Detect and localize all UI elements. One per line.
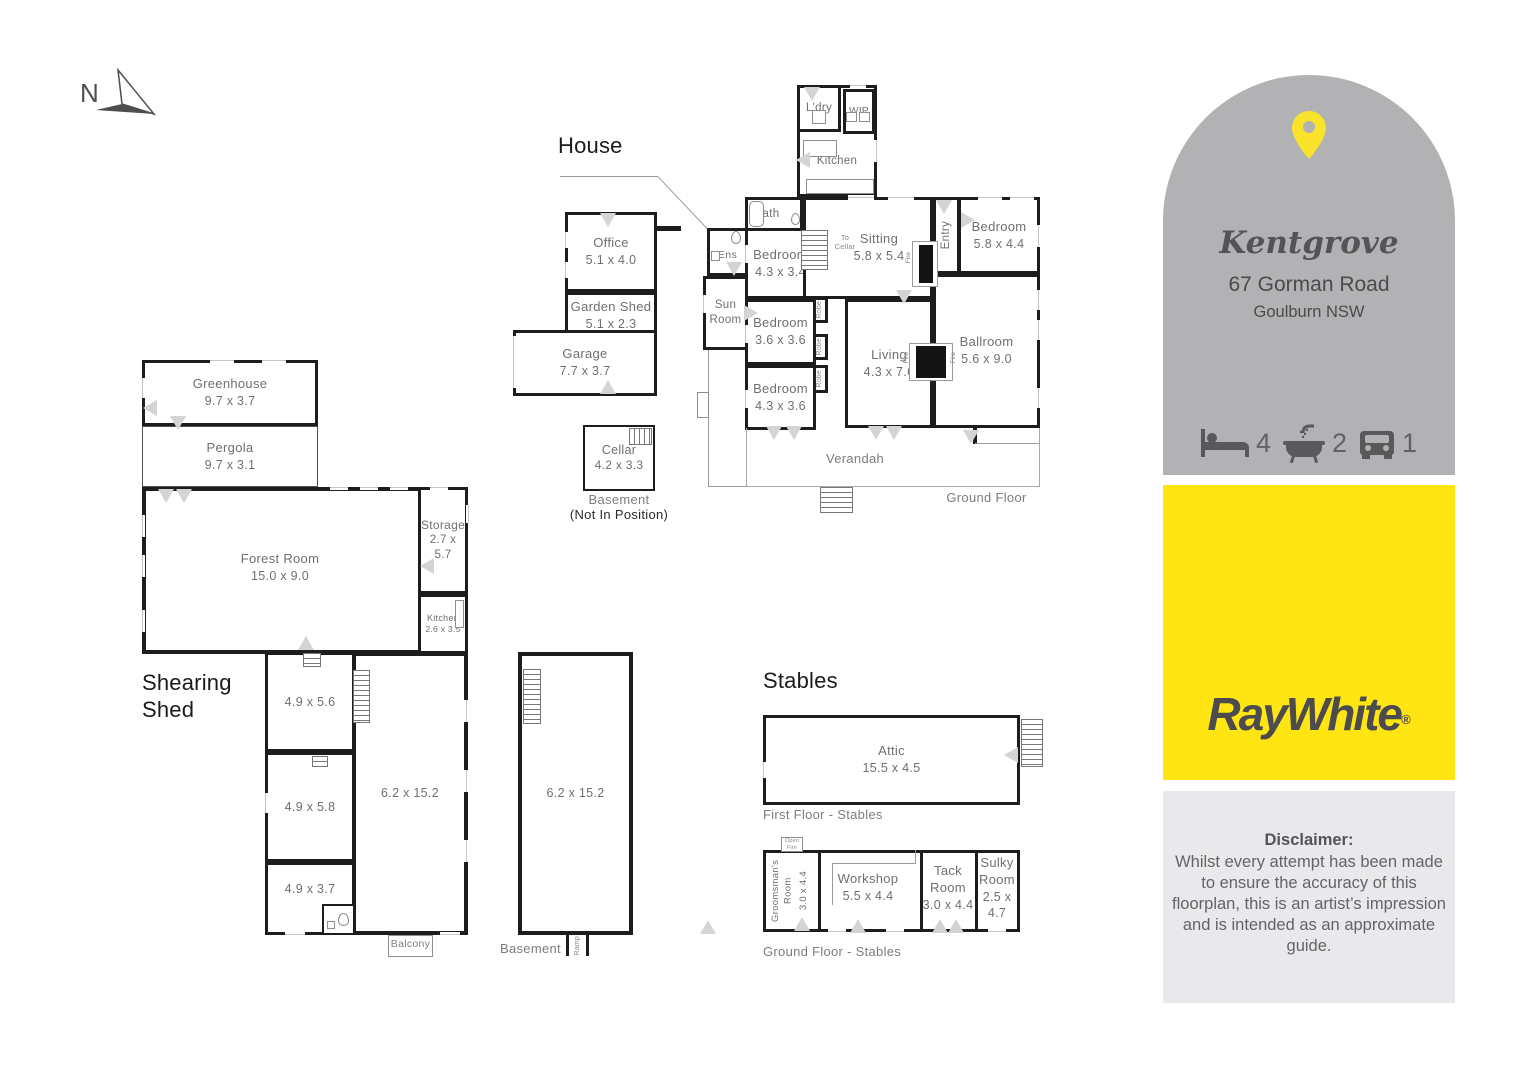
window-gap (263, 793, 268, 813)
room-bedroom-3: Bedroom 4.3 x 3.6 (745, 365, 816, 430)
door-icon (796, 152, 810, 168)
verandah-line (708, 350, 709, 487)
door-icon (744, 305, 758, 321)
door-icon (700, 920, 716, 934)
ground-floor-caption: Ground Floor (930, 490, 1043, 505)
door-icon (420, 558, 434, 574)
window-gap (140, 610, 145, 632)
fixture (455, 600, 464, 628)
door-icon (1004, 747, 1018, 763)
flue-line (915, 850, 916, 863)
stairs-icon (1021, 719, 1043, 767)
stairs-icon (801, 230, 828, 270)
disclaimer-title: Disclaimer: (1265, 831, 1354, 850)
verandah-label: Verandah (800, 451, 910, 466)
cars-feature: 1 (1357, 427, 1417, 459)
door-icon (961, 212, 975, 228)
fire-label: Fire (903, 352, 910, 363)
door-icon (948, 919, 964, 933)
forest-room-label: Forest Room 15.0 x 9.0 (160, 548, 400, 588)
window-gap (828, 929, 846, 934)
room-garage: Garage 7.7 x 3.7 (513, 330, 657, 396)
verandah-line (708, 486, 748, 487)
ray-white-logo: RayWhite® (1163, 691, 1455, 737)
fire-label: Fire (950, 352, 957, 363)
door-icon (143, 400, 157, 416)
fixture (846, 112, 857, 122)
stairs-icon (312, 756, 328, 767)
fixture-bathtub (749, 201, 764, 227)
house-section-title: House (558, 133, 623, 159)
disclaimer-block: Disclaimer: Whilst every attempt has bee… (1163, 791, 1455, 1003)
wall (657, 226, 681, 231)
floorplan-page: N House Office 5.1 x 4.0 Garden Shed 5.1… (0, 0, 1528, 1080)
door-icon (726, 262, 742, 276)
door-icon (766, 426, 782, 440)
stairs-icon (523, 669, 541, 724)
balcony-label: Balcony (388, 938, 433, 950)
to-cellar-label: To Cellar (830, 231, 860, 255)
stairs-icon (353, 670, 370, 723)
fixture-toilet (791, 213, 800, 225)
door-icon (850, 919, 866, 933)
door-icon (176, 489, 192, 503)
shearing-shed-title-line1: Shearing (142, 670, 232, 696)
room-greenhouse: Greenhouse 9.7 x 3.7 (142, 360, 318, 426)
car-icon (1357, 427, 1397, 459)
window-gap (850, 83, 866, 88)
address-line1: 67 Gorman Road (1163, 273, 1455, 297)
window-gap (330, 485, 348, 490)
window-gap (978, 195, 1002, 200)
window-gap (210, 358, 234, 363)
door-icon (786, 426, 802, 440)
property-info-panel: Kentgrove 67 Gorman Road Goulburn NSW 4 (1163, 75, 1455, 475)
fireplace (916, 346, 946, 378)
shed-room-b: 4.9 x 5.8 (265, 752, 355, 862)
location-pin-icon (1292, 111, 1326, 159)
disclaimer-body: Whilst every attempt has been made to en… (1170, 852, 1448, 957)
stairs-icon (820, 487, 853, 513)
window-gap (1036, 388, 1041, 408)
cellar-caption: Basement (583, 492, 655, 507)
window-gap (874, 140, 879, 162)
window-gap (140, 515, 145, 537)
door-icon (600, 380, 616, 394)
door-icon (936, 200, 952, 214)
door-icon (886, 426, 902, 440)
window-gap (848, 195, 874, 200)
room-attic: Attic 15.5 x 4.5 (763, 715, 1020, 805)
brand-block: RayWhite® (1163, 485, 1455, 780)
address-line2: Goulburn NSW (1163, 303, 1455, 322)
north-arrow-icon (88, 68, 160, 120)
registered-mark: ® (1401, 712, 1411, 727)
first-floor-stables-caption: First Floor - Stables (763, 807, 883, 822)
door-icon (868, 426, 884, 440)
ramp-wall (586, 935, 589, 956)
cellar-caption-note: (Not In Position) (560, 507, 678, 522)
fixture-basin (327, 921, 335, 929)
robe-closet: Robe (813, 365, 828, 393)
stairs-icon (303, 653, 321, 667)
window-gap (701, 295, 706, 313)
door-icon (932, 919, 948, 933)
door-icon (896, 290, 912, 304)
shed-room-a: 4.9 x 5.6 (265, 652, 355, 752)
door-icon (804, 87, 820, 101)
ramp-label: Ramp (570, 935, 586, 957)
ramp-wall (566, 935, 569, 956)
room-pergola: Pergola 9.7 x 3.1 (142, 426, 318, 487)
beds-feature: 4 (1201, 427, 1271, 459)
room-tack-label: Tack Room 3.0 x 4.4 (922, 858, 974, 918)
bed-icon (1201, 427, 1251, 459)
window-gap (743, 390, 748, 408)
leader-line (657, 176, 708, 230)
window-gap (743, 325, 748, 343)
door-icon (158, 489, 174, 503)
window-gap (262, 358, 286, 363)
flue-line (832, 863, 916, 864)
room-workshop-label: Workshop 5.5 x 4.4 (820, 868, 916, 908)
stables-section-title: Stables (763, 668, 838, 694)
fixture-washer (812, 110, 826, 124)
window-gap (464, 700, 469, 722)
leader-line (560, 176, 658, 177)
window-gap (888, 195, 914, 200)
window-gap (464, 770, 469, 792)
robe-closet: Robe (813, 334, 828, 360)
flue-line (832, 863, 833, 905)
window-gap (390, 485, 408, 490)
window-gap (140, 555, 145, 577)
window-gap (511, 336, 516, 388)
bath-icon (1281, 423, 1327, 463)
stairs-icon (629, 428, 652, 445)
door-icon (794, 917, 810, 931)
fixture-toilet (731, 231, 741, 244)
window-gap (563, 262, 568, 278)
window-gap (430, 485, 448, 490)
window-gap (1036, 320, 1041, 340)
room-bedroom-4: Bedroom 5.8 x 4.4 (958, 197, 1040, 274)
baths-count: 2 (1332, 428, 1347, 459)
baths-feature: 2 (1281, 423, 1347, 463)
fireplace (919, 245, 933, 283)
window-gap (988, 929, 1006, 934)
fire-label: Fire (905, 252, 912, 263)
room-sulky-label: Sulky Room 2.5 x 4.7 (974, 858, 1020, 918)
features-row: 4 2 (1163, 423, 1455, 463)
room-storage: Storage 2.7 x 5.7 (418, 487, 468, 594)
open-fire-box: Open Fire (781, 837, 803, 852)
cars-count: 1 (1402, 428, 1417, 459)
window-gap (886, 929, 904, 934)
window-gap (466, 505, 471, 523)
window-gap (761, 762, 766, 778)
window-gap (360, 485, 378, 490)
door-icon (170, 416, 186, 430)
room-sun-room: Sun Room (703, 276, 748, 350)
robe-closet: Robe (813, 297, 828, 323)
fixture (859, 112, 870, 122)
fixture (697, 392, 709, 418)
fixture-toilet (338, 913, 349, 926)
window-gap (1036, 225, 1041, 247)
fixture-basin (711, 251, 720, 261)
window-gap (1036, 290, 1041, 310)
window-gap (743, 245, 748, 263)
shearing-shed-title-line2: Shed (142, 697, 194, 723)
window-gap (1010, 195, 1034, 200)
window-gap (563, 232, 568, 248)
door-icon (963, 430, 979, 444)
ground-floor-stables-caption: Ground Floor - Stables (763, 944, 901, 959)
window-gap (285, 932, 305, 937)
beds-count: 4 (1256, 428, 1271, 459)
door-icon (600, 213, 616, 227)
window-gap (440, 932, 460, 937)
fixture-bench (806, 179, 874, 194)
window-gap (464, 840, 469, 862)
verandah-line (975, 443, 1039, 444)
window-gap (140, 378, 145, 398)
property-name: Kentgrove (1163, 225, 1455, 261)
door-icon (298, 636, 314, 650)
